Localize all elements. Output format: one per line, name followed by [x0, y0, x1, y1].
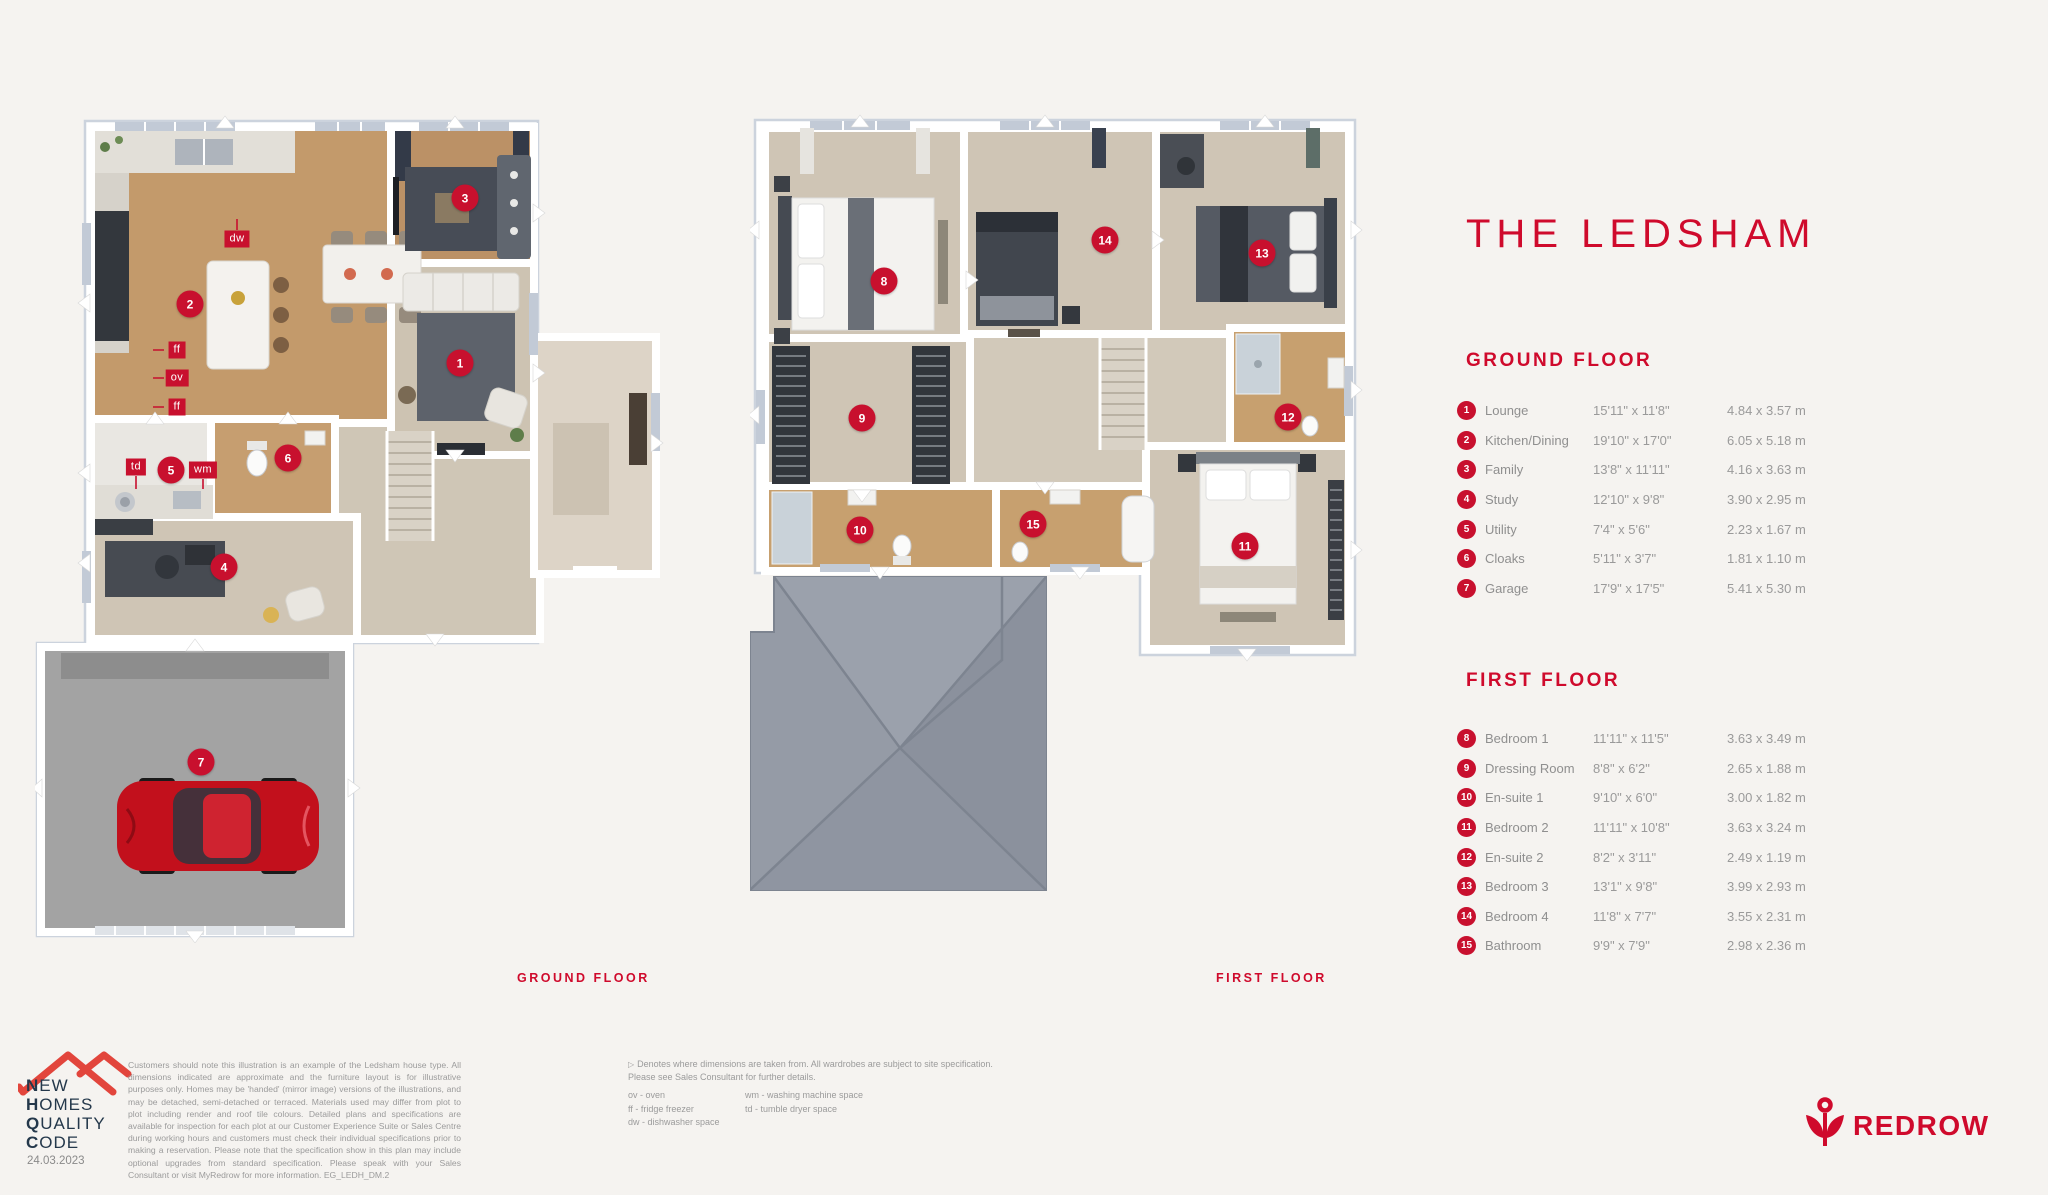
room-number-badge: 8: [1457, 729, 1476, 748]
ground-floor-heading: GROUND FLOOR: [1466, 350, 1652, 372]
room-name: Study: [1485, 492, 1518, 507]
room-imperial: 8'2" x 3'11": [1593, 850, 1727, 865]
room-imperial: 12'10" x 9'8": [1593, 492, 1727, 507]
room-imperial: 13'8" x 11'11": [1593, 462, 1727, 477]
room-number-badge: 15: [1457, 936, 1476, 955]
room-marker-8: 8: [871, 268, 898, 295]
first-floor-plan: 81413910151211: [750, 100, 1370, 980]
appliance-label-dw: dw: [224, 231, 249, 248]
room-imperial: 15'11" x 11'8": [1593, 403, 1727, 418]
room-row: 11Bedroom 211'11" x 10'8"3.63 x 3.24 m: [1457, 813, 1887, 843]
room-name: Kitchen/Dining: [1485, 433, 1569, 448]
room-number-badge: 11: [1457, 818, 1476, 837]
room-imperial: 11'11" x 11'5": [1593, 731, 1727, 746]
disclaimer-text: Customers should note this illustration …: [128, 1059, 461, 1181]
room-name: Bedroom 2: [1485, 820, 1549, 835]
room-metric: 4.84 x 3.57 m: [1727, 403, 1887, 418]
room-imperial: 11'11" x 10'8": [1593, 820, 1727, 835]
legend-item: ff - fridge freezer: [628, 1103, 745, 1117]
room-imperial: 8'8" x 6'2": [1593, 761, 1727, 776]
room-metric: 3.99 x 2.93 m: [1727, 879, 1887, 894]
room-imperial: 9'10" x 6'0": [1593, 790, 1727, 805]
room-row: 10En-suite 19'10" x 6'0"3.00 x 1.82 m: [1457, 783, 1887, 813]
room-imperial: 9'9" x 7'9": [1593, 938, 1727, 953]
legend-item: wm - washing machine space: [745, 1089, 863, 1103]
abbreviation-legend: ov - oven ff - fridge freezer dw - dishw…: [628, 1089, 863, 1130]
room-number-badge: 9: [1457, 759, 1476, 778]
room-name: Cloaks: [1485, 551, 1525, 566]
room-row: 8Bedroom 111'11" x 11'5"3.63 x 3.49 m: [1457, 724, 1887, 754]
room-number-badge: 2: [1457, 431, 1476, 450]
room-metric: 1.81 x 1.10 m: [1727, 551, 1887, 566]
redrow-logo: REDROW: [1803, 1096, 1990, 1148]
room-name: Bedroom 3: [1485, 879, 1549, 894]
plan-date: 24.03.2023: [27, 1155, 85, 1167]
room-imperial: 17'9" x 17'5": [1593, 581, 1727, 596]
legend-item: dw - dishwasher space: [628, 1116, 745, 1130]
room-row: 13Bedroom 313'1" x 9'8"3.99 x 2.93 m: [1457, 872, 1887, 902]
triangle-icon: ▷: [628, 1060, 634, 1069]
room-marker-4: 4: [211, 554, 238, 581]
room-marker-10: 10: [847, 517, 874, 544]
redrow-flower-icon: [1803, 1096, 1847, 1148]
room-metric: 2.65 x 1.88 m: [1727, 761, 1887, 776]
room-row: 7Garage17'9" x 17'5"5.41 x 5.30 m: [1457, 574, 1887, 604]
page-title: THE LEDSHAM: [1466, 212, 1817, 257]
room-number-badge: 5: [1457, 520, 1476, 539]
room-marker-2: 2: [177, 291, 204, 318]
room-metric: 6.05 x 5.18 m: [1727, 433, 1887, 448]
ground-floor-caption: GROUND FLOOR: [517, 971, 650, 985]
room-number-badge: 10: [1457, 788, 1476, 807]
room-row: 12En-suite 28'2" x 3'11"2.49 x 1.19 m: [1457, 842, 1887, 872]
redrow-wordmark: REDROW: [1853, 1110, 1990, 1142]
room-number-badge: 1: [1457, 401, 1476, 420]
room-name: Utility: [1485, 522, 1517, 537]
room-marker-12: 12: [1275, 404, 1302, 431]
room-row: 3Family13'8" x 11'11"4.16 x 3.63 m: [1457, 455, 1887, 485]
room-number-badge: 14: [1457, 907, 1476, 926]
room-row: 9Dressing Room8'8" x 6'2"2.65 x 1.88 m: [1457, 754, 1887, 784]
room-metric: 3.63 x 3.49 m: [1727, 731, 1887, 746]
room-metric: 5.41 x 5.30 m: [1727, 581, 1887, 596]
room-name: Dressing Room: [1485, 761, 1575, 776]
room-marker-11: 11: [1232, 533, 1259, 560]
appliance-label-ff: ff: [169, 342, 186, 359]
room-number-badge: 3: [1457, 460, 1476, 479]
room-metric: 2.23 x 1.67 m: [1727, 522, 1887, 537]
ground-floor-markers-layer: 2315647dwffovfftdwm: [35, 93, 665, 943]
room-name: En-suite 2: [1485, 850, 1544, 865]
room-imperial: 11'8" x 7'7": [1593, 909, 1727, 924]
room-marker-5: 5: [158, 457, 185, 484]
room-number-badge: 6: [1457, 549, 1476, 568]
room-marker-13: 13: [1249, 240, 1276, 267]
first-floor-heading: FIRST FLOOR: [1466, 670, 1620, 692]
room-name: Family: [1485, 462, 1523, 477]
room-number-badge: 12: [1457, 848, 1476, 867]
room-name: Bedroom 1: [1485, 731, 1549, 746]
room-number-badge: 13: [1457, 877, 1476, 896]
room-row: 4Study12'10" x 9'8"3.90 x 2.95 m: [1457, 485, 1887, 515]
appliance-label-td: td: [126, 459, 146, 476]
room-row: 15Bathroom9'9" x 7'9"2.98 x 2.36 m: [1457, 931, 1887, 961]
room-metric: 2.98 x 2.36 m: [1727, 938, 1887, 953]
room-metric: 3.90 x 2.95 m: [1727, 492, 1887, 507]
legend-item: ov - oven: [628, 1089, 745, 1103]
room-name: Bedroom 4: [1485, 909, 1549, 924]
room-name: Bathroom: [1485, 938, 1541, 953]
room-metric: 3.00 x 1.82 m: [1727, 790, 1887, 805]
room-row: 6Cloaks5'11" x 3'7"1.81 x 1.10 m: [1457, 544, 1887, 574]
appliance-label-ff: ff: [169, 399, 186, 416]
ground-floor-plan: 2315647dwffovfftdwm: [35, 93, 665, 943]
first-floor-markers-layer: 81413910151211: [750, 100, 1370, 980]
appliance-label-ov: ov: [166, 370, 189, 387]
room-metric: 3.55 x 2.31 m: [1727, 909, 1887, 924]
room-marker-1: 1: [447, 350, 474, 377]
room-imperial: 13'1" x 9'8": [1593, 879, 1727, 894]
room-number-badge: 4: [1457, 490, 1476, 509]
legend-item: td - tumble dryer space: [745, 1103, 863, 1117]
first-floor-caption: FIRST FLOOR: [1216, 971, 1327, 985]
first-floor-room-list: 8Bedroom 111'11" x 11'5"3.63 x 3.49 m 9D…: [1457, 724, 1887, 961]
room-metric: 4.16 x 3.63 m: [1727, 462, 1887, 477]
room-name: En-suite 1: [1485, 790, 1544, 805]
nhqc-logo-text: NEW HOMES QUALITY CODE: [26, 1076, 106, 1152]
room-imperial: 19'10" x 17'0": [1593, 433, 1727, 448]
room-marker-9: 9: [849, 405, 876, 432]
room-marker-15: 15: [1020, 511, 1047, 538]
room-row: 1Lounge15'11" x 11'8"4.84 x 3.57 m: [1457, 396, 1887, 426]
room-marker-6: 6: [275, 445, 302, 472]
ground-floor-room-list: 1Lounge15'11" x 11'8"4.84 x 3.57 m 2Kitc…: [1457, 396, 1887, 603]
room-number-badge: 7: [1457, 579, 1476, 598]
room-imperial: 7'4" x 5'6": [1593, 522, 1727, 537]
room-marker-3: 3: [452, 185, 479, 212]
room-metric: 3.63 x 3.24 m: [1727, 820, 1887, 835]
room-marker-14: 14: [1092, 227, 1119, 254]
room-row: 5Utility7'4" x 5'6"2.23 x 1.67 m: [1457, 514, 1887, 544]
room-row: 14Bedroom 411'8" x 7'7"3.55 x 2.31 m: [1457, 902, 1887, 932]
room-imperial: 5'11" x 3'7": [1593, 551, 1727, 566]
room-metric: 2.49 x 1.19 m: [1727, 850, 1887, 865]
dimension-note: ▷Denotes where dimensions are taken from…: [628, 1058, 1068, 1084]
appliance-label-wm: wm: [189, 462, 217, 479]
room-name: Lounge: [1485, 403, 1528, 418]
room-marker-7: 7: [188, 749, 215, 776]
room-row: 2Kitchen/Dining19'10" x 17'0"6.05 x 5.18…: [1457, 426, 1887, 456]
room-name: Garage: [1485, 581, 1528, 596]
